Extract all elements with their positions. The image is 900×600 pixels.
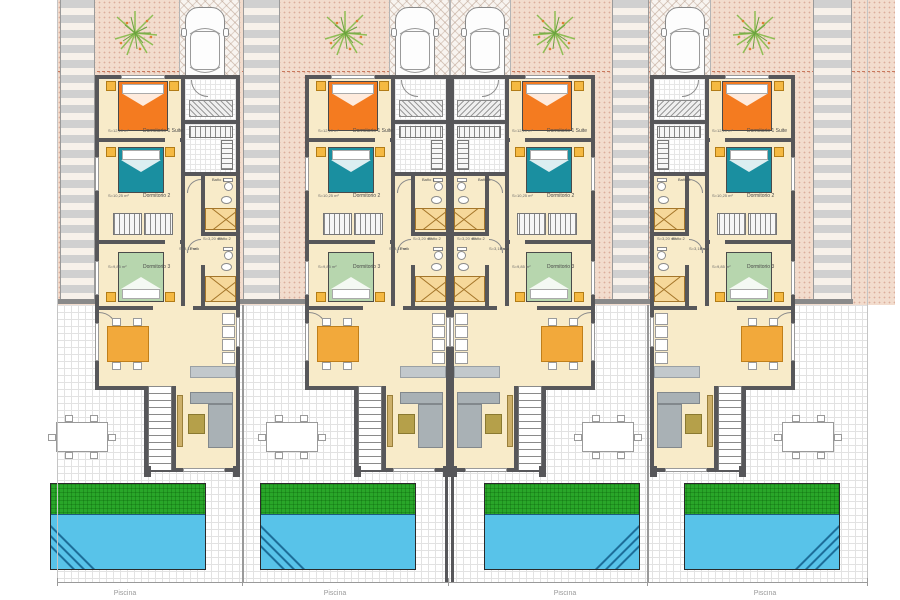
nightstand [515, 147, 525, 157]
room-name: Baño 1 [678, 178, 691, 183]
tree-icon [107, 5, 163, 61]
pool-water [51, 514, 205, 569]
bed-fold [121, 277, 161, 289]
room-area: S=10,25 m² [318, 194, 339, 199]
sink-icon [458, 196, 469, 204]
chair [108, 434, 116, 441]
bed-fold [121, 160, 161, 172]
pillow [530, 150, 568, 160]
room-name: Dormitorio 3 [353, 265, 380, 271]
pool-caption: Piscina [65, 590, 185, 598]
fridge-icon [455, 352, 468, 364]
wardrobe [748, 213, 777, 235]
pillow [530, 289, 568, 299]
dining-table [317, 326, 359, 362]
chair [90, 452, 98, 459]
bed-double-teal [328, 147, 374, 193]
bed-double-green [726, 252, 772, 302]
sliding-door [465, 468, 507, 472]
bed-double-green [526, 252, 572, 302]
wardrobe [548, 213, 577, 235]
toilet-icon [657, 251, 666, 260]
shower-x [205, 276, 236, 302]
pool-water [261, 514, 415, 569]
kitchen-counter [190, 366, 236, 378]
kitchen-sink-icon [455, 313, 468, 325]
chair [634, 434, 642, 441]
chair [90, 415, 98, 422]
shower-x [654, 276, 685, 302]
bed-fold [729, 277, 769, 289]
door-opening [165, 240, 180, 244]
room-area: S=3,20 m² [657, 237, 676, 242]
chair [133, 362, 142, 370]
pool-water [685, 514, 839, 569]
porch-column [354, 466, 361, 477]
house: Dormitorio 1 Suite S=12,10 m² Dormitorio… [450, 75, 595, 475]
sink-icon [431, 196, 442, 204]
toilet-icon [457, 251, 466, 260]
bed-double-green [328, 252, 374, 302]
window [591, 323, 595, 361]
shower-x [205, 208, 236, 230]
sofa [208, 404, 233, 448]
pillow [332, 150, 370, 160]
nightstand [375, 147, 385, 157]
wall [654, 120, 705, 124]
nightstand [165, 147, 175, 157]
chair [748, 318, 757, 326]
chair [592, 415, 600, 422]
door-opening [153, 306, 193, 310]
shower-x [654, 208, 685, 230]
room-area: S=3,15 m² [179, 247, 198, 252]
toilet-icon [224, 182, 233, 191]
wardrobe [144, 213, 173, 235]
stairs [518, 386, 542, 470]
fridge-icon [222, 352, 235, 364]
room-area: S=3,20 m² [203, 237, 222, 242]
dimension-tick [242, 578, 243, 586]
window [95, 261, 99, 295]
window [650, 317, 654, 347]
toilet-icon [434, 182, 443, 191]
plan-units: Dormitorio 1 Suite S=12,10 m² Dormitorio… [0, 0, 900, 600]
nightstand [316, 147, 326, 157]
sliding-door [665, 468, 707, 472]
pool-steps [261, 515, 298, 569]
chair [792, 452, 800, 459]
closet-rail [657, 140, 669, 170]
wall [738, 386, 795, 390]
room-area: S=10,25 m² [712, 194, 733, 199]
window [725, 75, 769, 79]
door-opening [497, 306, 537, 310]
wardrobe [717, 213, 746, 235]
shower-icon [415, 208, 446, 230]
room-area: S=3,15 m² [689, 247, 708, 252]
closet-rail [457, 140, 469, 170]
chair [769, 362, 778, 370]
stairs [718, 386, 742, 470]
door-opening [375, 138, 390, 142]
pool [260, 483, 416, 570]
room-area: S=10,25 m² [512, 194, 533, 199]
nightstand [375, 292, 385, 302]
shower-icon [454, 276, 485, 302]
coffee-table [188, 414, 205, 434]
wall [172, 386, 176, 472]
chair [112, 362, 121, 370]
shower-x [415, 208, 446, 230]
window [305, 261, 309, 295]
room-name: Baño 1 [212, 178, 225, 183]
chair [574, 434, 582, 441]
porch-column [443, 466, 450, 477]
wall [305, 75, 450, 79]
bed-double-orange [722, 81, 772, 131]
room-name: Dormitorio 2 [547, 194, 574, 200]
window [591, 157, 595, 191]
wall [542, 386, 546, 472]
hob-icon [655, 326, 668, 338]
door-opening [363, 306, 403, 310]
wall [236, 75, 240, 472]
nightstand [774, 147, 784, 157]
lawn [485, 484, 639, 514]
wall [454, 120, 505, 124]
unit-2: Dormitorio 1 Suite S=12,10 m² Dormitorio… [305, 0, 450, 600]
shower-x [454, 208, 485, 230]
sliding-door [393, 468, 435, 472]
tv-board [177, 395, 183, 447]
dimension-line [57, 582, 868, 583]
dining-table [107, 326, 149, 362]
closet-rail [431, 140, 443, 170]
wall [454, 172, 505, 176]
lawn [685, 484, 839, 514]
room-name: Baño 1 [422, 178, 435, 183]
tv-board [507, 395, 513, 447]
window [236, 317, 240, 347]
lawn [51, 484, 205, 514]
nightstand [515, 292, 525, 302]
kitchen-counter [454, 366, 500, 378]
shower-x [654, 208, 685, 230]
outdoor-table [782, 422, 834, 452]
shower-icon [654, 276, 685, 302]
sofa [457, 404, 482, 448]
chair [48, 434, 56, 441]
shower-x [415, 208, 446, 230]
coffee-table [485, 414, 502, 434]
wall [391, 75, 395, 306]
wall [395, 172, 446, 176]
wardrobe [354, 213, 383, 235]
shower-x [454, 208, 485, 230]
pillow [726, 84, 768, 94]
chair [318, 434, 326, 441]
wall [705, 75, 709, 306]
bed-double-teal [526, 147, 572, 193]
window [450, 317, 454, 347]
bed-fold [331, 277, 371, 289]
lawn [261, 484, 415, 514]
shower-x [205, 276, 236, 302]
wall [742, 386, 746, 472]
room-area: S=3,20 m² [413, 237, 432, 242]
unit-4: Dormitorio 1 Suite S=12,10 m² Dormitorio… [650, 0, 795, 600]
kitchen-counter [400, 366, 446, 378]
room-name: Dormitorio 3 [747, 265, 774, 271]
closet-rail [221, 140, 233, 170]
room-area: S=12,10 m² [512, 129, 533, 134]
wall [382, 386, 386, 472]
nightstand [774, 292, 784, 302]
sofa [418, 404, 443, 448]
shower-icon [205, 276, 236, 302]
sink-icon [658, 263, 669, 271]
house: Dormitorio 1 Suite S=12,10 m² Dormitorio… [95, 75, 240, 475]
tree-icon [527, 5, 583, 61]
chair [617, 452, 625, 459]
chair [65, 452, 73, 459]
oven-icon [432, 339, 445, 351]
shower-icon [205, 208, 236, 230]
door-opening [710, 240, 725, 244]
closet-rail [189, 126, 233, 138]
floor-plan: Dormitorio 1 Suite S=12,10 m² Dormitorio… [0, 0, 900, 600]
chair [748, 362, 757, 370]
shower-icon [654, 208, 685, 230]
room-name: Dormitorio 1 Suite [143, 129, 183, 135]
pillow [122, 150, 160, 160]
door-opening [510, 240, 525, 244]
chair [65, 415, 73, 422]
room-name: Dormitorio 3 [547, 265, 574, 271]
wall [95, 75, 240, 79]
nightstand [316, 292, 326, 302]
bed-double-orange [118, 81, 168, 131]
door-opening [510, 138, 525, 142]
chair [774, 434, 782, 441]
hob-icon [455, 326, 468, 338]
toilet-icon [224, 251, 233, 260]
stairs [148, 386, 172, 470]
sofa [657, 392, 700, 404]
chair [834, 434, 842, 441]
wall [538, 386, 595, 390]
dimension-tick [647, 578, 648, 586]
nightstand [774, 81, 784, 91]
room-name: Dormitorio 1 Suite [747, 129, 787, 135]
chair [322, 362, 331, 370]
bed-fold [333, 94, 373, 106]
bed-double-teal [118, 147, 164, 193]
wall [650, 75, 654, 472]
chair [548, 318, 557, 326]
unit-1: Dormitorio 1 Suite S=12,10 m² Dormitorio… [95, 0, 240, 600]
pool [50, 483, 206, 570]
unit-3: Dormitorio 1 Suite S=12,10 m² Dormitorio… [450, 0, 595, 600]
window [121, 75, 165, 79]
coffee-table [398, 414, 415, 434]
hob-icon [432, 326, 445, 338]
tree-icon [727, 5, 783, 61]
room-area: S=3,15 m² [489, 247, 508, 252]
nightstand [715, 147, 725, 157]
nightstand [106, 81, 116, 91]
wall [650, 75, 795, 79]
chair [569, 318, 578, 326]
bed-double-orange [522, 81, 572, 131]
pool-water [485, 514, 639, 569]
wall [450, 75, 454, 472]
toilet-icon [434, 251, 443, 260]
sink-icon [221, 196, 232, 204]
porch-column [450, 466, 457, 477]
pool-steps [812, 515, 839, 569]
outdoor-table [266, 422, 318, 452]
house: Dormitorio 1 Suite S=12,10 m² Dormitorio… [305, 75, 450, 475]
window [791, 261, 795, 295]
shower-x [415, 276, 446, 302]
pool-caption: Piscina [705, 590, 825, 598]
chair [817, 415, 825, 422]
porch-column [144, 466, 151, 477]
door-opening [165, 138, 180, 142]
shower-x [205, 208, 236, 230]
dimension-tick [448, 578, 449, 586]
window [525, 75, 569, 79]
chair [258, 434, 266, 441]
shower-icon [454, 208, 485, 230]
chair [569, 362, 578, 370]
kitchen-sink-icon [655, 313, 668, 325]
window [791, 157, 795, 191]
fridge-icon [655, 352, 668, 364]
fridge-icon [432, 352, 445, 364]
wall [485, 265, 489, 306]
pool [484, 483, 640, 570]
closet-rail [657, 126, 701, 138]
chair [343, 362, 352, 370]
room-area: S=12,10 m² [712, 129, 733, 134]
chair [817, 452, 825, 459]
entry-mat [657, 100, 701, 117]
sofa [190, 392, 233, 404]
wall [395, 120, 446, 124]
room-name: Dormitorio 2 [353, 194, 380, 200]
oven-icon [455, 339, 468, 351]
wall [185, 120, 236, 124]
room-name: Dormitorio 2 [143, 194, 170, 200]
bed-fold [727, 94, 767, 106]
dining-table [741, 326, 783, 362]
window [591, 261, 595, 295]
shower-x [454, 276, 485, 302]
sink-icon [658, 196, 669, 204]
door-opening [697, 306, 737, 310]
shower-icon [415, 276, 446, 302]
nightstand [574, 81, 584, 91]
pillow [730, 289, 768, 299]
room-area: S=3,20 m² [457, 237, 476, 242]
wall [505, 75, 509, 306]
sofa [457, 392, 500, 404]
outdoor-table [56, 422, 108, 452]
toilet-icon [657, 182, 666, 191]
pillow [526, 84, 568, 94]
tree-icon [317, 5, 373, 61]
bed-fold [529, 277, 569, 289]
porch-column [650, 466, 657, 477]
plot-boundary [867, 0, 868, 583]
wardrobe [517, 213, 546, 235]
outdoor-table [582, 422, 634, 452]
pool-steps [612, 515, 639, 569]
nightstand [711, 81, 721, 91]
sofa [657, 404, 682, 448]
room-name: Dormitorio 2 [747, 194, 774, 200]
pool-caption: Piscina [505, 590, 625, 598]
wall [450, 75, 595, 79]
room-area: S=9,85 m² [318, 265, 337, 270]
room-area: S=9,85 m² [712, 265, 731, 270]
stairs [358, 386, 382, 470]
chair [792, 415, 800, 422]
closet-rail [457, 126, 501, 138]
room-area: S=9,85 m² [108, 265, 127, 270]
window [791, 323, 795, 361]
shower-x [654, 276, 685, 302]
nightstand [574, 147, 584, 157]
chair [592, 452, 600, 459]
bed-fold [529, 160, 569, 172]
kitchen-counter [654, 366, 700, 378]
pillow [332, 289, 370, 299]
room-name: Dormitorio 3 [143, 265, 170, 271]
bed-fold [331, 160, 371, 172]
window [331, 75, 375, 79]
plot-boundary [57, 0, 58, 583]
room-name: Dormitorio 1 Suite [547, 129, 587, 135]
closet-rail [399, 126, 443, 138]
chair [112, 318, 121, 326]
pillow [122, 289, 160, 299]
room-name: Dormitorio 1 Suite [353, 129, 393, 135]
room-area: S=12,10 m² [108, 129, 129, 134]
nightstand [165, 292, 175, 302]
oven-icon [222, 339, 235, 351]
bed-double-teal [726, 147, 772, 193]
porch-column [739, 466, 746, 477]
pillow [332, 84, 374, 94]
room-area: S=3,15 m² [389, 247, 408, 252]
dimension-tick [867, 578, 868, 586]
room-area: S=9,85 m² [512, 265, 531, 270]
nightstand [316, 81, 326, 91]
entry-mat [399, 100, 443, 117]
wardrobe [323, 213, 352, 235]
bed-fold [729, 160, 769, 172]
bed-double-orange [328, 81, 378, 131]
nightstand [715, 292, 725, 302]
nightstand [574, 292, 584, 302]
tv-board [387, 395, 393, 447]
pool [684, 483, 840, 570]
kitchen-sink-icon [432, 313, 445, 325]
